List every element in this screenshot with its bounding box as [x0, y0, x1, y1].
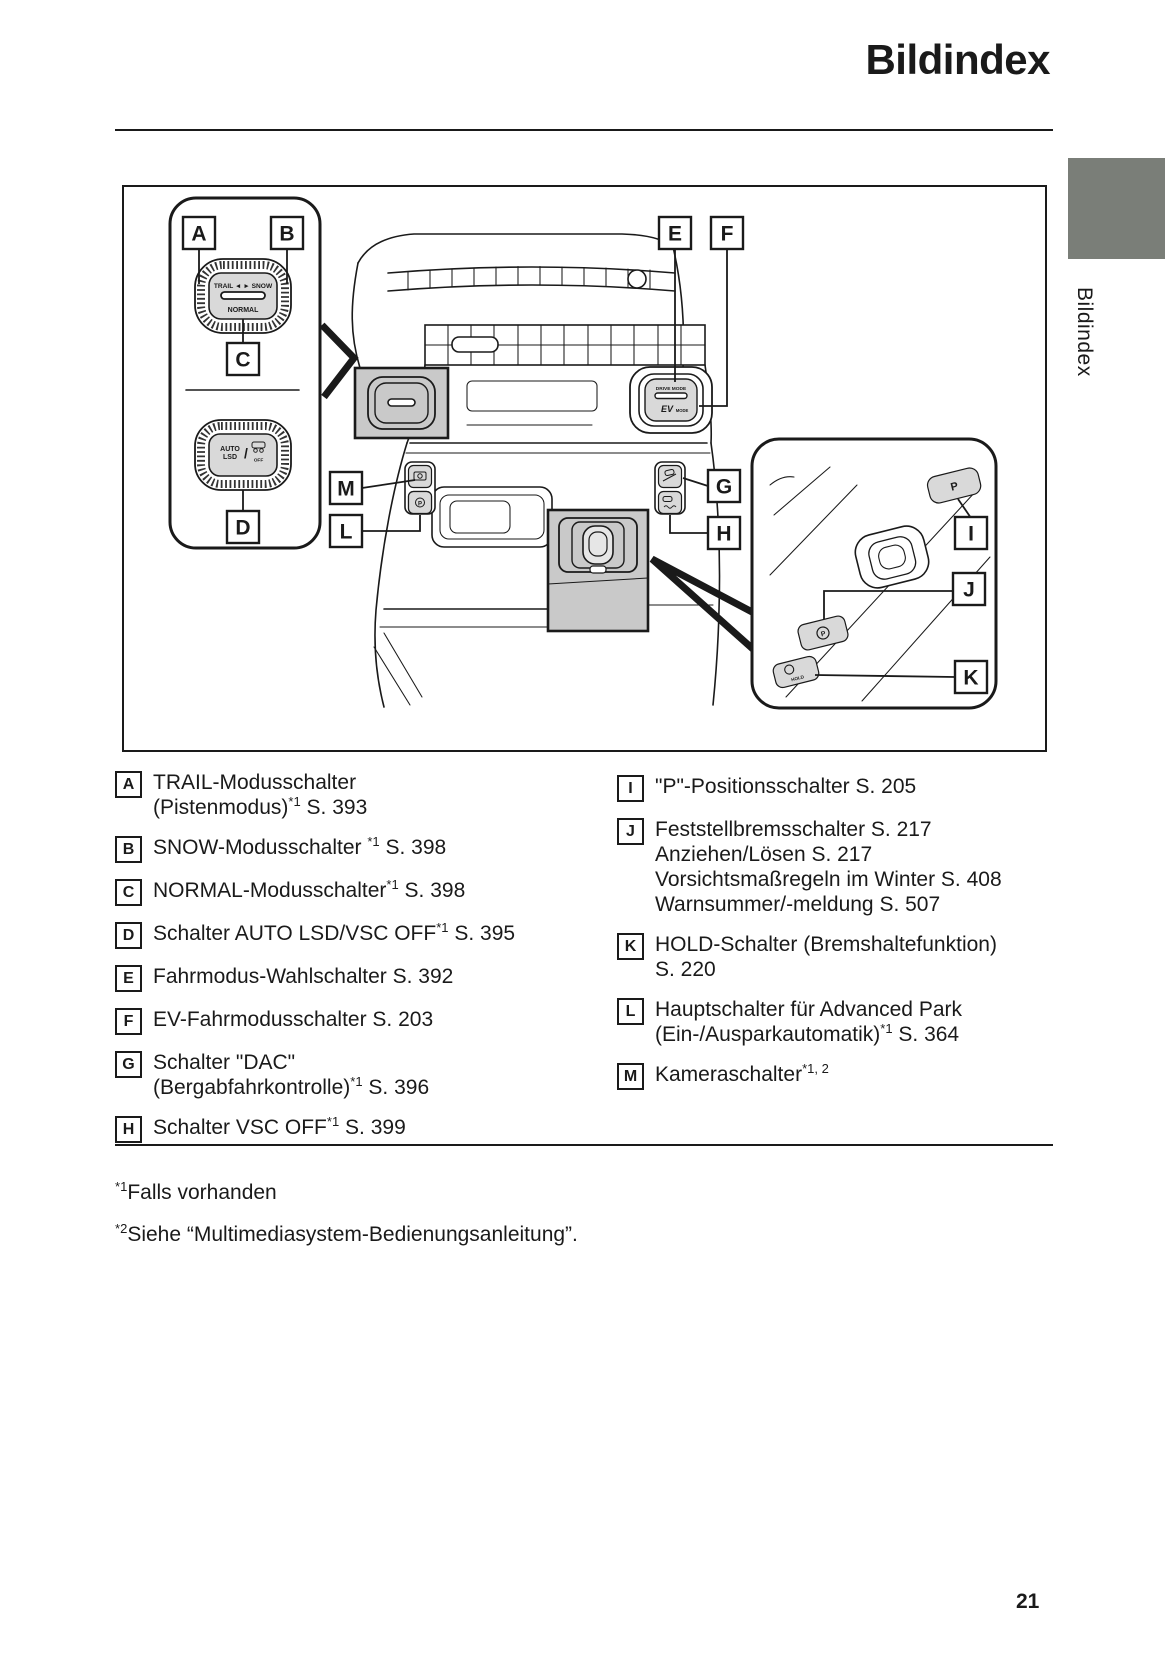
- side-tab-label: Bildindex: [1072, 287, 1096, 377]
- legend-item-I: I"P"-Positionsschalter S. 205: [617, 774, 1053, 802]
- legend-text-M: Kameraschalter*1, 2: [655, 1062, 1053, 1090]
- console-diagram: TRAIL ◄ ► SNOW NORMAL AUTO LSD / OFF: [122, 185, 1047, 752]
- legend-item-L: LHauptschalter für Advanced Park(Ein-/Au…: [617, 997, 1053, 1047]
- legend-item-A: ATRAIL-Modusschalter(Pistenmodus)*1 S. 3…: [115, 770, 593, 820]
- footnote: *2Siehe “Multimediasystem-Bedienungsanle…: [115, 1222, 578, 1248]
- svg-text:A: A: [191, 223, 206, 246]
- legend-letter-I: I: [617, 775, 644, 802]
- title-rule: [115, 129, 1053, 131]
- callout-g: G: [708, 470, 740, 502]
- legend-letter-L: L: [617, 998, 644, 1025]
- legend-text-L: Hauptschalter für Advanced Park(Ein-/Aus…: [655, 997, 1053, 1047]
- legend-text-K: HOLD-Schalter (Bremshaltefunktion)S. 220: [655, 932, 1053, 982]
- svg-text:M: M: [337, 478, 355, 501]
- off-label: OFF: [254, 458, 264, 464]
- legend-text-C: NORMAL-Modusschalter*1 S. 398: [153, 878, 593, 906]
- svg-text:E: E: [668, 223, 682, 246]
- advanced-park-switch-button: P: [409, 492, 432, 514]
- drive-mode-ev-switch: DRIVE MODE EV MODE: [630, 367, 712, 433]
- svg-text:B: B: [279, 223, 294, 246]
- ev-mode-label: MODE: [676, 408, 689, 413]
- legend-text-D: Schalter AUTO LSD/VSC OFF*1 S. 395: [153, 921, 593, 949]
- legend-bottom-rule: [115, 1144, 1053, 1146]
- svg-text:H: H: [716, 523, 731, 546]
- callout-a: A: [183, 217, 215, 249]
- callout-j: J: [953, 573, 985, 605]
- page-title: Bildindex: [865, 36, 1050, 84]
- legend-text-G: Schalter "DAC"(Bergabfahrkontrolle)*1 S.…: [153, 1050, 593, 1100]
- legend-text-E: Fahrmodus-Wahlschalter S. 392: [153, 964, 593, 992]
- legend-text-B: SNOW-Modusschalter *1 S. 398: [153, 835, 593, 863]
- legend-item-J: JFeststellbremsschalter S. 217Anziehen/L…: [617, 817, 1053, 917]
- legend-item-K: KHOLD-Schalter (Bremshaltefunktion)S. 22…: [617, 932, 1053, 982]
- legend-letter-H: H: [115, 1116, 142, 1143]
- legend-left-column: ATRAIL-Modusschalter(Pistenmodus)*1 S. 3…: [115, 770, 593, 1158]
- legend-letter-M: M: [617, 1063, 644, 1090]
- camera-advanced-park-panel: P: [405, 462, 435, 514]
- legend-letter-G: G: [115, 1051, 142, 1078]
- callout-c: C: [227, 343, 259, 375]
- legend-text-F: EV-Fahrmodusschalter S. 203: [153, 1007, 593, 1035]
- svg-text:L: L: [340, 521, 353, 544]
- camera-switch-button: [409, 466, 432, 488]
- callout-d: D: [227, 511, 259, 543]
- legend-item-D: DSchalter AUTO LSD/VSC OFF*1 S. 395: [115, 921, 593, 949]
- legend-text-A: TRAIL-Modusschalter(Pistenmodus)*1 S. 39…: [153, 770, 593, 820]
- console-highlight: [548, 510, 648, 631]
- callout-b: B: [271, 217, 303, 249]
- legend-letter-D: D: [115, 922, 142, 949]
- callout-e: E: [659, 217, 691, 249]
- section-tab-marker: [1068, 158, 1165, 259]
- dac-vsc-panel: [655, 462, 685, 514]
- callout-i: I: [955, 517, 987, 549]
- legend-item-G: GSchalter "DAC"(Bergabfahrkontrolle)*1 S…: [115, 1050, 593, 1100]
- auto-lsd-vsc-off-switch: AUTO LSD / OFF: [195, 420, 291, 490]
- dash-switch-highlight: [355, 368, 448, 438]
- legend-item-F: FEV-Fahrmodusschalter S. 203: [115, 1007, 593, 1035]
- legend-text-J: Feststellbremsschalter S. 217Anziehen/Lö…: [655, 817, 1053, 917]
- callout-k: K: [955, 661, 987, 693]
- svg-text:K: K: [963, 667, 978, 690]
- page-number: 21: [1016, 1590, 1039, 1614]
- callout-l: L: [330, 515, 362, 547]
- legend-right-column: I"P"-Positionsschalter S. 205JFeststellb…: [617, 774, 1053, 1105]
- lsd-slash: /: [244, 445, 248, 461]
- footnotes: *1Falls vorhanden*2Siehe “Multimediasyst…: [115, 1180, 578, 1264]
- svg-text:F: F: [721, 223, 734, 246]
- legend-item-B: BSNOW-Modusschalter *1 S. 398: [115, 835, 593, 863]
- trail-snow-label: TRAIL ◄ ► SNOW: [214, 283, 273, 290]
- footnote: *1Falls vorhanden: [115, 1180, 578, 1206]
- ap-p-label: P: [418, 502, 422, 508]
- dac-switch-button: [659, 466, 682, 488]
- vsc-off-switch-button: [659, 492, 682, 514]
- legend-item-H: HSchalter VSC OFF*1 S. 399: [115, 1115, 593, 1143]
- svg-text:C: C: [235, 349, 250, 372]
- legend-item-E: EFahrmodus-Wahlschalter S. 392: [115, 964, 593, 992]
- callout-h: H: [708, 517, 740, 549]
- legend-letter-J: J: [617, 818, 644, 845]
- legend-letter-E: E: [115, 965, 142, 992]
- svg-text:D: D: [235, 517, 250, 540]
- legend-text-I: "P"-Positionsschalter S. 205: [655, 774, 1053, 802]
- legend-letter-C: C: [115, 879, 142, 906]
- legend-letter-K: K: [617, 933, 644, 960]
- lsd-label: LSD: [223, 454, 237, 461]
- callout-m: M: [330, 472, 362, 504]
- legend-letter-B: B: [115, 836, 142, 863]
- svg-text:G: G: [716, 476, 732, 499]
- normal-label: NORMAL: [228, 307, 259, 314]
- svg-text:I: I: [968, 523, 974, 546]
- svg-text:J: J: [963, 579, 975, 602]
- auto-label: AUTO: [220, 446, 240, 453]
- console-diagram-svg: TRAIL ◄ ► SNOW NORMAL AUTO LSD / OFF: [122, 185, 1047, 752]
- ev-label: EV: [661, 404, 674, 414]
- legend-letter-F: F: [115, 1008, 142, 1035]
- legend-letter-A: A: [115, 771, 142, 798]
- legend-text-H: Schalter VSC OFF*1 S. 399: [153, 1115, 593, 1143]
- drive-mode-label: DRIVE MODE: [656, 386, 687, 392]
- callout-f: F: [711, 217, 743, 249]
- legend-item-C: CNORMAL-Modusschalter*1 S. 398: [115, 878, 593, 906]
- legend-item-M: MKameraschalter*1, 2: [617, 1062, 1053, 1090]
